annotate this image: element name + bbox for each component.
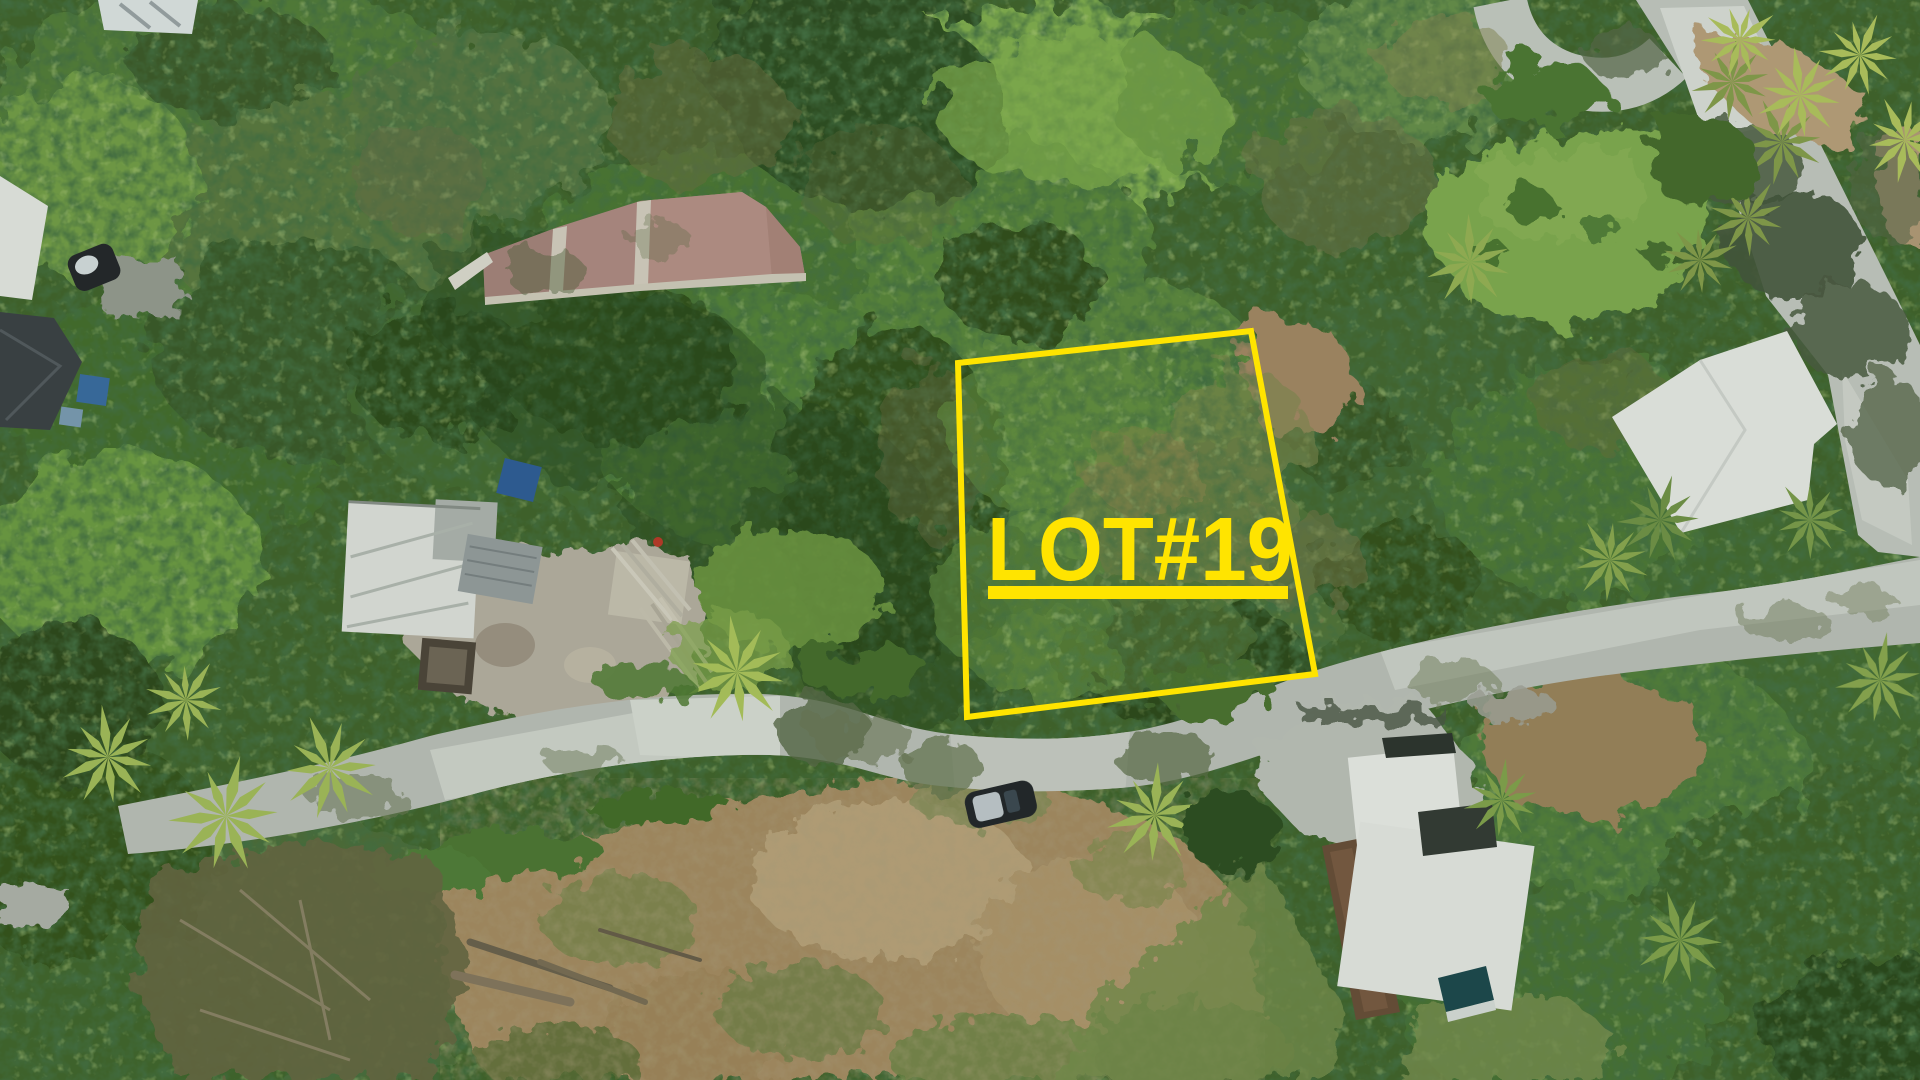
svg-text:LOT#19: LOT#19 (987, 500, 1293, 600)
